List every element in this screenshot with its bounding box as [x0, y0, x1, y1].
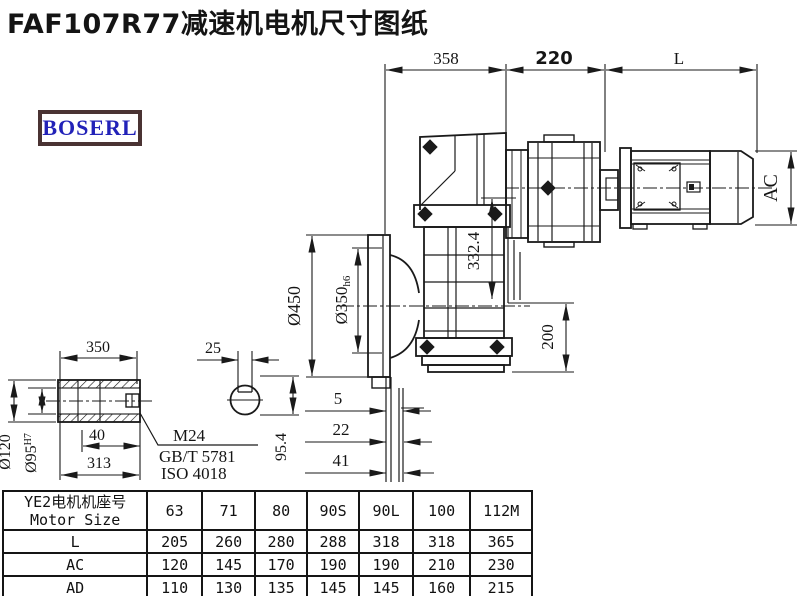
dim-motor-dia: AC	[755, 151, 797, 225]
table-cell: 215	[470, 576, 532, 596]
table-row-label: L	[3, 530, 147, 553]
output-flange	[368, 235, 419, 388]
dim-200-label: 200	[538, 324, 557, 350]
table-cell: 318	[359, 530, 413, 553]
dim-spigot: Ø350h6	[332, 248, 382, 353]
table-cell: 145	[202, 553, 256, 576]
table-row-label: AC	[3, 553, 147, 576]
dim-shaft-350-label: 350	[86, 339, 110, 356]
hollow-shaft-detail: 350 Ø120 Ø95H7 40	[0, 339, 258, 483]
dim-41-label: 41	[333, 451, 350, 470]
table-header-cell: 63	[147, 491, 202, 530]
top-dimensions: 358 220 L	[385, 48, 757, 234]
table-row-AD: AD 110 130 135 145 145 160 215	[3, 576, 532, 596]
table-header-cell: 90L	[359, 491, 413, 530]
table-row-AC: AC 120 145 170 190 190 210 230	[3, 553, 532, 576]
dim-25-label: 25	[205, 340, 221, 357]
table-cell: 230	[470, 553, 532, 576]
dim-358-label: 358	[433, 49, 459, 68]
table-cell: 130	[202, 576, 256, 596]
dim-hub-od-label: Ø120	[0, 434, 14, 470]
dim-22-label: 22	[333, 420, 350, 439]
table-cell: 205	[147, 530, 202, 553]
table-cell: 135	[255, 576, 306, 596]
dim-5-label: 5	[334, 389, 343, 408]
face-offset-dims: 5 22 41	[305, 377, 434, 482]
table-cell: 288	[307, 530, 359, 553]
table-header-cell: 71	[202, 491, 256, 530]
table-row-label: AD	[3, 576, 147, 596]
dim-95-4-label: 95.4	[273, 433, 290, 461]
table-cell: 190	[307, 553, 359, 576]
table-cell: 170	[255, 553, 306, 576]
table-header-cell: 100	[413, 491, 471, 530]
motor	[505, 148, 775, 229]
dim-bore-main: Ø95	[23, 445, 40, 473]
table-header-cell: 80	[255, 491, 306, 530]
table-header-motor-size: YE2电机机座号 Motor Size	[3, 491, 147, 530]
table-cell: 145	[307, 576, 359, 596]
table-cell: 365	[470, 530, 532, 553]
table-header-en: Motor Size	[4, 511, 146, 529]
note-iso-label: ISO 4018	[161, 464, 227, 483]
table-header-row: YE2电机机座号 Motor Size 63 71 80 90S 90L 100…	[3, 491, 532, 530]
dim-220-label: 220	[535, 48, 573, 69]
table-cell: 210	[413, 553, 471, 576]
dim-313-label: 313	[87, 455, 111, 472]
dim-350-main: Ø350	[332, 287, 351, 325]
dim-center-to-base: 200	[508, 303, 574, 372]
dim-bore-label: Ø95H7	[23, 433, 40, 473]
table-header-cell: 112M	[470, 491, 532, 530]
table-cell: 160	[413, 576, 471, 596]
dim-L-label: L	[674, 49, 684, 68]
dim-450-label: Ø450	[284, 286, 304, 326]
table-cell: 145	[359, 576, 413, 596]
table-cell: 260	[202, 530, 256, 553]
dim-AC-label: AC	[760, 174, 782, 202]
dim-bore-tol: H7	[23, 433, 34, 445]
drawing-page: FAF107R77减速机电机尺寸图纸 BOSERL	[0, 0, 800, 596]
table-cell: 110	[147, 576, 202, 596]
motor-size-table: YE2电机机座号 Motor Size 63 71 80 90S 90L 100…	[2, 490, 533, 596]
input-adapter	[506, 135, 618, 247]
shaft-end-view: 25 95.4	[197, 340, 299, 461]
table-header-cn: YE2电机机座号	[4, 493, 146, 511]
dim-350h6-label: Ø350h6	[332, 275, 353, 324]
table-row-L: L 205 260 280 288 318 318 365	[3, 530, 532, 553]
note-thread-label: M24	[173, 426, 206, 445]
table-header-cell: 90S	[307, 491, 359, 530]
dim-350-tol: h6	[341, 275, 353, 287]
table-cell: 120	[147, 553, 202, 576]
dim-332-label: 332.4	[464, 231, 483, 270]
table-cell: 190	[359, 553, 413, 576]
table-cell: 318	[413, 530, 471, 553]
dim-40-label: 40	[89, 427, 105, 444]
table-cell: 280	[255, 530, 306, 553]
